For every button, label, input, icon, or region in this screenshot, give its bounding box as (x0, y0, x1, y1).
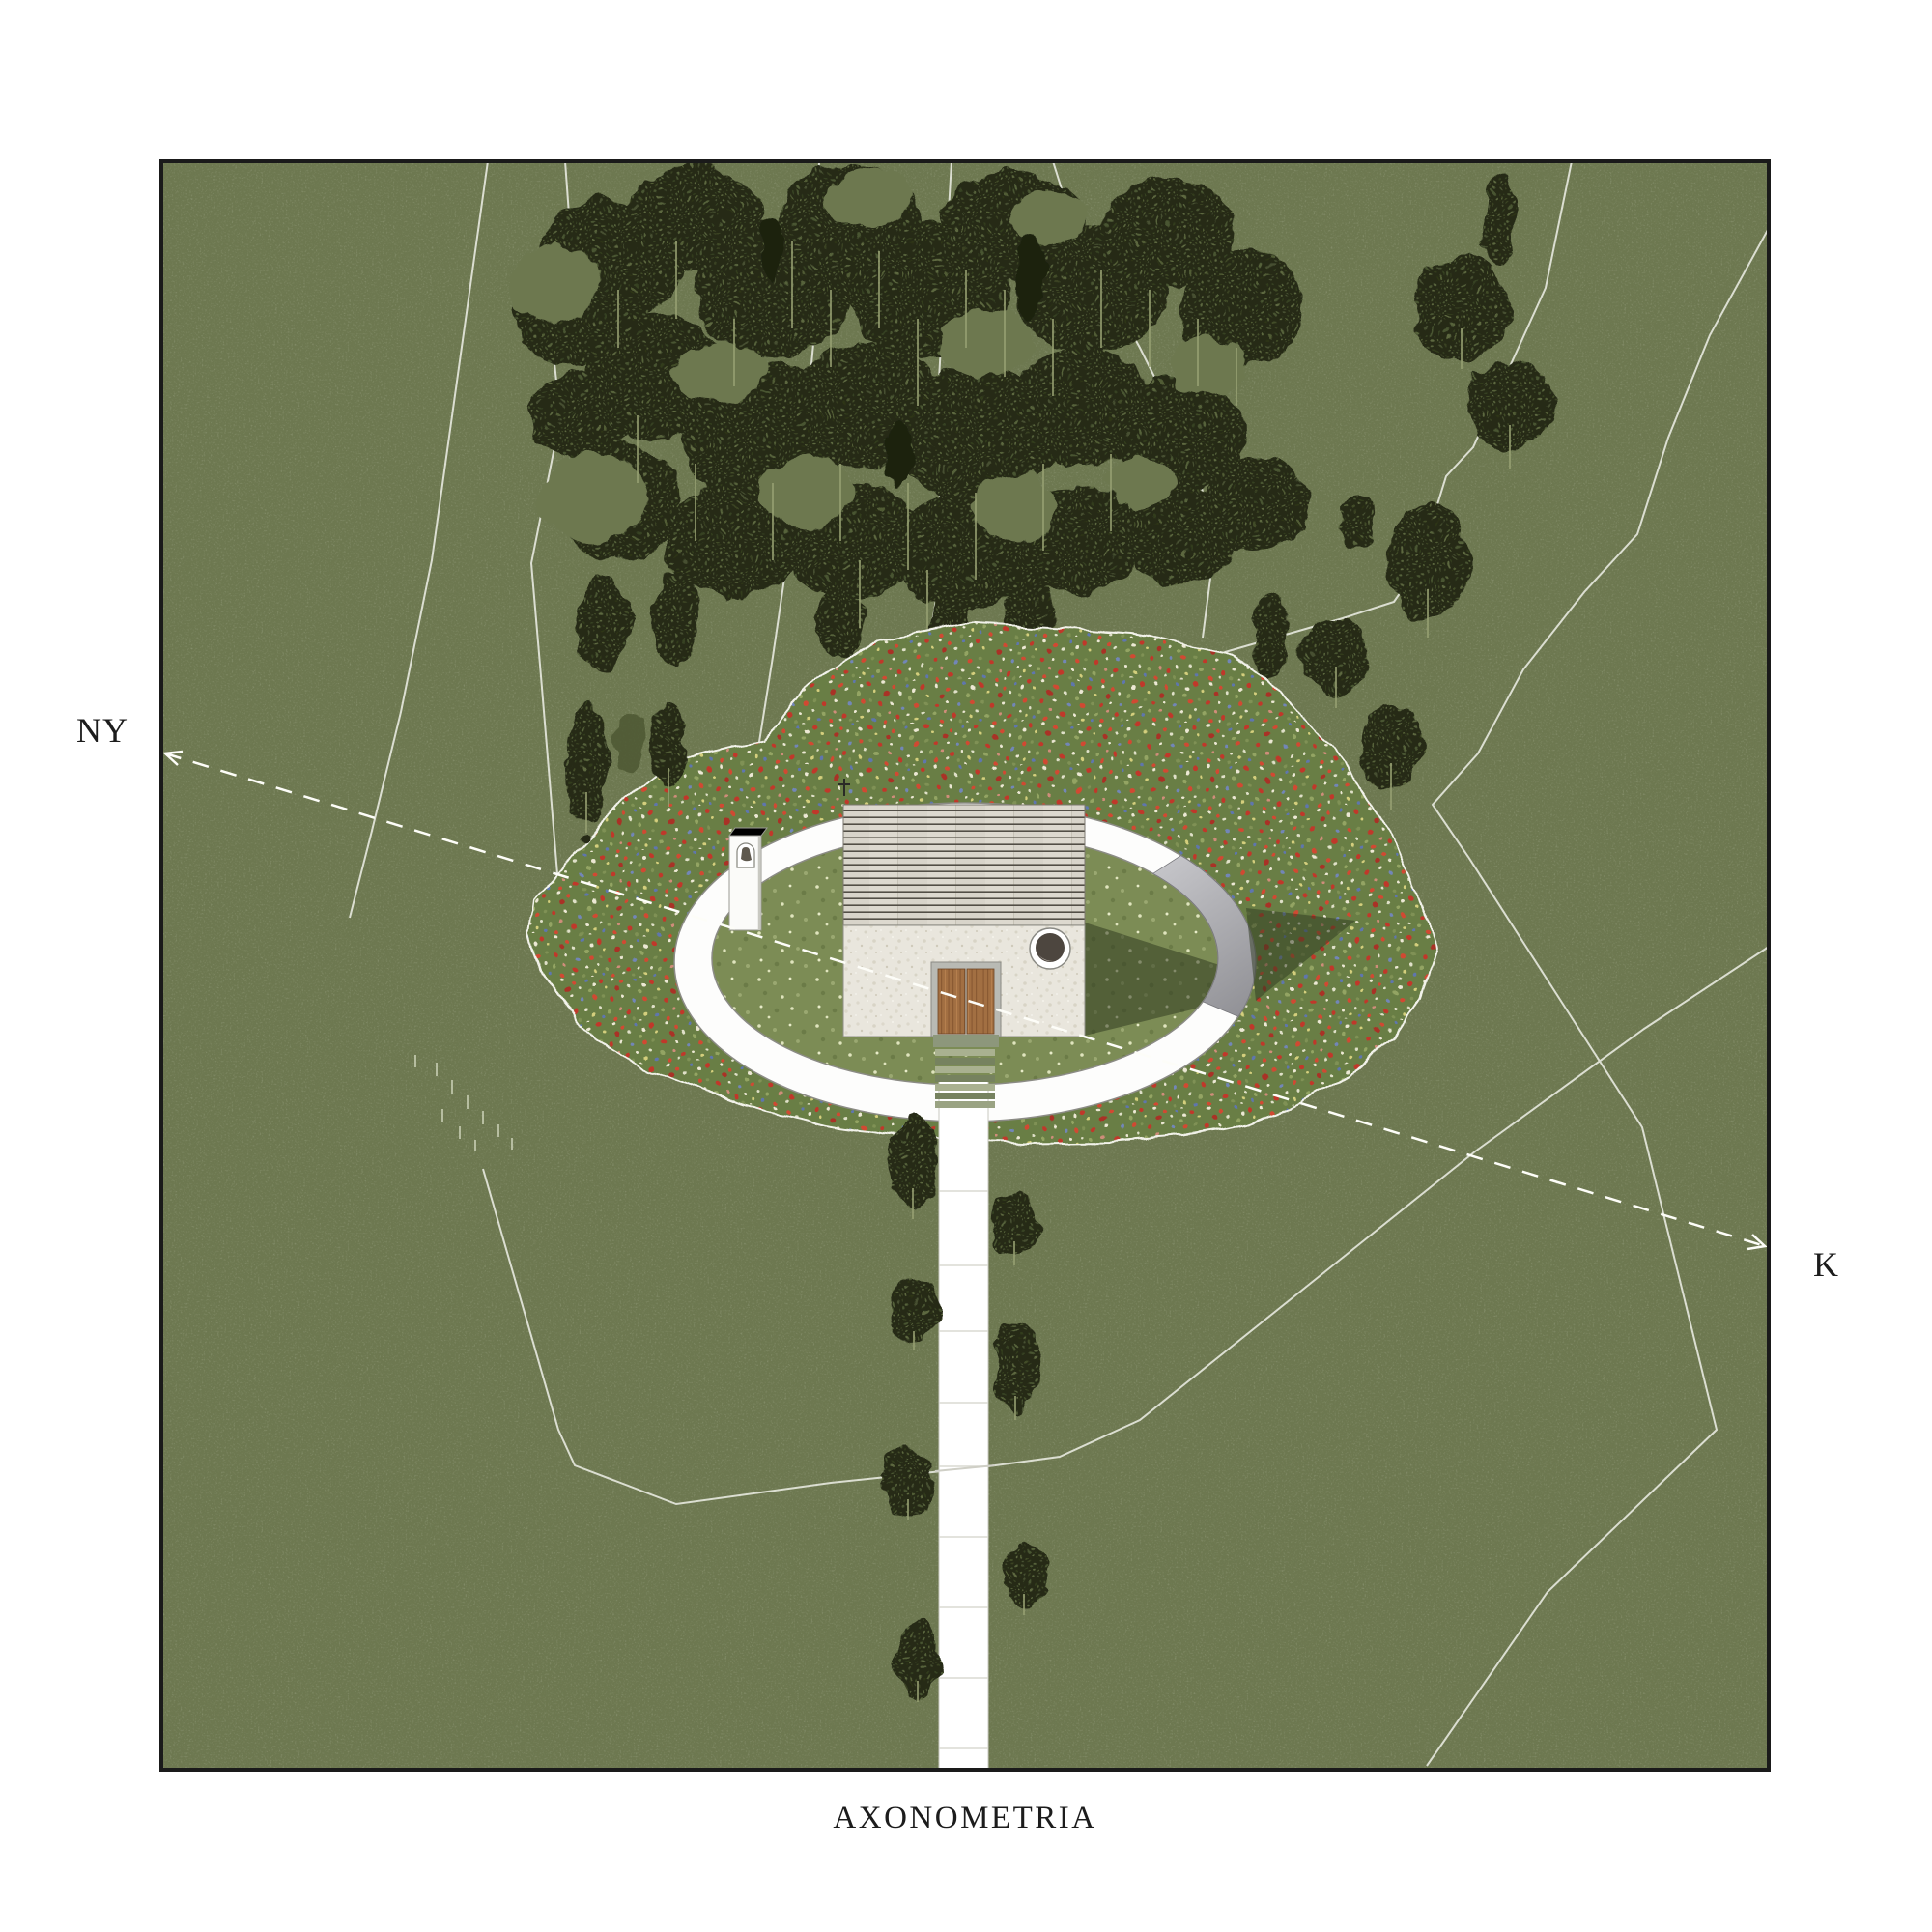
entry-steps (933, 1035, 999, 1108)
bell-pillar (729, 828, 767, 930)
porthole-glass (1036, 933, 1065, 962)
compass-label-east: K (1782, 1244, 1869, 1285)
chapel (838, 779, 1085, 1037)
access-path (935, 1082, 995, 1770)
compass-label-west: NY (54, 710, 151, 751)
site-plan-svg (0, 0, 1932, 1932)
door-leaf-left (938, 969, 965, 1034)
chapel-roof (843, 805, 1085, 925)
drawing-caption: AXONOMETRIA (724, 1801, 1207, 1836)
axonometric-site-drawing: NY K AXONOMETRIA (0, 0, 1932, 1932)
